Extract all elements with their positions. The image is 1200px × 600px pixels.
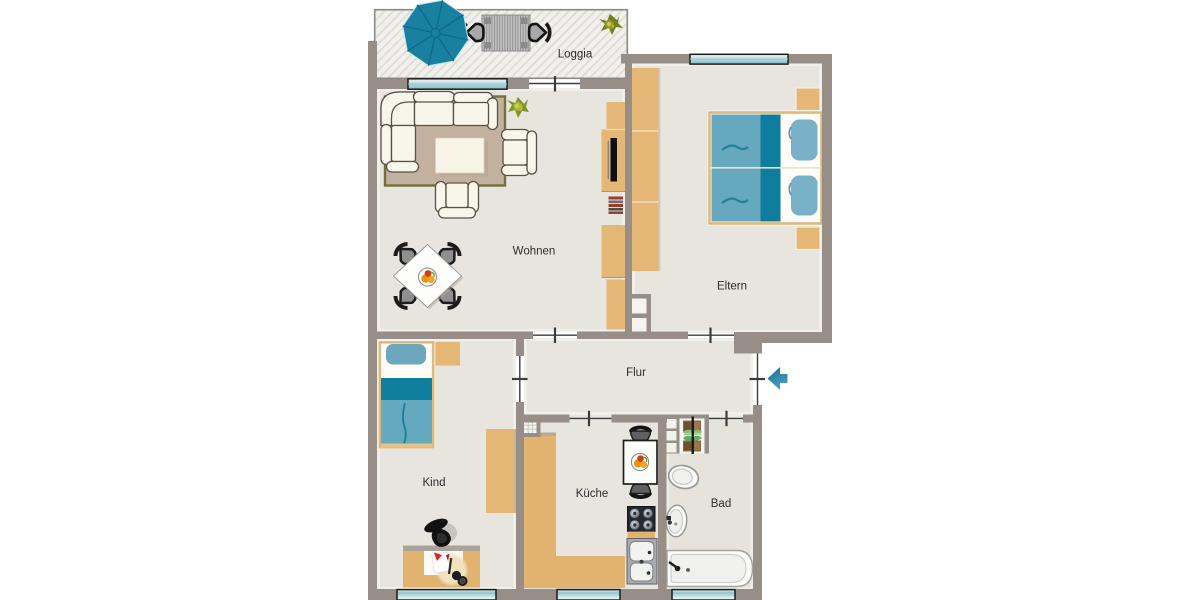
svg-text:Küche: Küche — [576, 488, 609, 500]
svg-text:Flur: Flur — [626, 367, 646, 379]
svg-text:Eltern: Eltern — [717, 281, 747, 293]
svg-text:Wohnen: Wohnen — [513, 246, 556, 258]
svg-text:Kind: Kind — [422, 477, 445, 489]
svg-text:Loggia: Loggia — [558, 49, 593, 61]
svg-text:Bad: Bad — [711, 498, 731, 510]
